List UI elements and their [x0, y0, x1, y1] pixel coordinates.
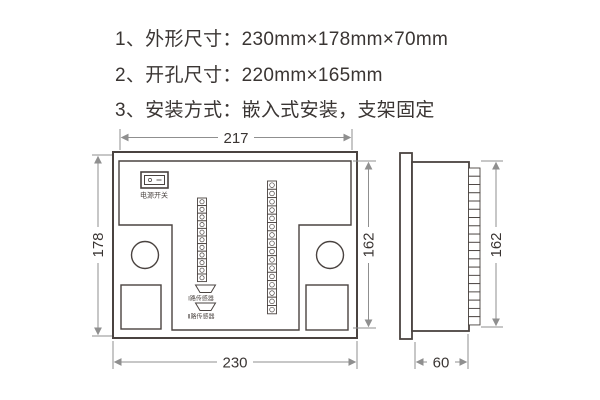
- terminal-cell: [469, 234, 481, 242]
- terminal-cell: [469, 308, 481, 316]
- dimension-depth-60: 60: [415, 334, 468, 372]
- terminal-cell: [268, 181, 277, 189]
- spec-sheet-page: 1、外形尺寸：230mm×178mm×70mm 2、开孔尺寸：220mm×165…: [0, 0, 600, 400]
- terminal-cell: [469, 275, 481, 283]
- terminal-cell: [469, 284, 481, 292]
- terminal-cell: [268, 306, 277, 314]
- terminal-cell: [198, 206, 207, 214]
- terminal-cell: [198, 274, 207, 282]
- dimension-left-178: 178: [90, 155, 112, 336]
- spec-line-mounting: 3、安装方式：嵌入式安装，支架固定: [115, 99, 435, 121]
- side-body: [412, 162, 469, 331]
- terminal-cell: [198, 213, 207, 221]
- dimension-drawing: 1、外形尺寸：230mm×178mm×70mm 2、开孔尺寸：220mm×165…: [0, 0, 600, 400]
- terminal-cell: [268, 239, 277, 247]
- rear-view: 电源开关 Ⅰ路传感器 Ⅱ路传感器 217 178: [90, 129, 378, 372]
- terminal-cell: [469, 176, 481, 184]
- terminal-cell: [268, 264, 277, 272]
- terminal-cell: [268, 231, 277, 239]
- terminal-cell: [469, 185, 481, 193]
- terminal-cell: [469, 168, 481, 176]
- dim-value-60: 60: [433, 355, 450, 372]
- dimension-bottom-230: 230: [113, 341, 357, 372]
- dim-value-side-162: 162: [488, 232, 505, 257]
- terminal-cell: [198, 236, 207, 244]
- terminal-cell: [268, 256, 277, 264]
- spec-line-cutout-size: 2、开孔尺寸：220mm×165mm: [115, 64, 383, 86]
- terminal-cell: [198, 259, 207, 267]
- dim-value-178: 178: [90, 232, 107, 257]
- sensor1-label: Ⅰ路传感器: [188, 295, 214, 303]
- left-terminal-strip: [198, 198, 207, 282]
- terminal-cell: [268, 223, 277, 231]
- terminal-cell: [198, 251, 207, 259]
- terminal-cell: [469, 317, 481, 325]
- side-terminal-ladder: [469, 168, 481, 325]
- sensor2-label: Ⅱ路传感器: [188, 313, 215, 321]
- terminal-cell: [469, 193, 481, 201]
- dimension-side-162: 162: [481, 161, 505, 327]
- terminal-cell: [469, 300, 481, 308]
- terminal-cell: [469, 292, 481, 300]
- dim-value-rear-162: 162: [361, 232, 378, 257]
- terminal-cell: [198, 228, 207, 236]
- terminal-cell: [469, 209, 481, 217]
- terminal-cell: [268, 247, 277, 255]
- power-switch: [141, 172, 168, 188]
- terminal-cell: [268, 297, 277, 305]
- right-terminal-strip: [268, 181, 277, 314]
- terminal-cell: [268, 281, 277, 289]
- power-switch-label: 电源开关: [140, 191, 168, 200]
- terminal-cell: [198, 221, 207, 229]
- dim-value-230: 230: [222, 355, 247, 372]
- terminal-cell: [469, 251, 481, 259]
- side-front-bezel: [400, 153, 412, 339]
- terminal-cell: [198, 244, 207, 252]
- terminal-cell: [469, 226, 481, 234]
- terminal-cell: [469, 267, 481, 275]
- terminal-cell: [268, 214, 277, 222]
- terminal-cell: [268, 206, 277, 214]
- side-view: 162 60: [400, 153, 505, 372]
- terminal-cell: [268, 289, 277, 297]
- spec-text-block: 1、外形尺寸：230mm×178mm×70mm 2、开孔尺寸：220mm×165…: [115, 28, 448, 121]
- terminal-cell: [198, 198, 207, 206]
- terminal-cell: [268, 198, 277, 206]
- spec-line-outline-size: 1、外形尺寸：230mm×178mm×70mm: [115, 28, 448, 50]
- terminal-cell: [268, 189, 277, 197]
- terminal-cell: [469, 201, 481, 209]
- dim-value-217: 217: [223, 130, 248, 147]
- terminal-cell: [469, 242, 481, 250]
- terminal-cell: [268, 272, 277, 280]
- terminal-cell: [469, 259, 481, 267]
- terminal-cell: [198, 266, 207, 274]
- dimension-top-217: 217: [120, 129, 352, 150]
- terminal-cell: [469, 218, 481, 226]
